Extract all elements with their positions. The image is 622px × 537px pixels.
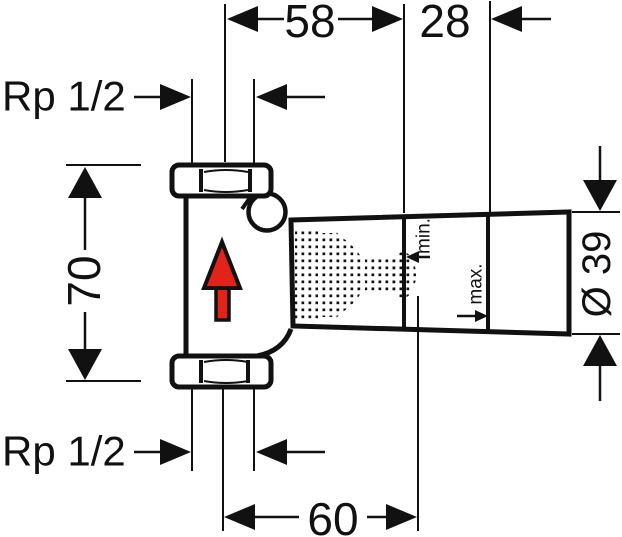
- dimension-70: 70: [58, 167, 110, 380]
- hex-nut-bottom: [172, 356, 271, 387]
- dim-70-label: 70: [58, 255, 110, 306]
- dim-28-label: 28: [419, 0, 470, 47]
- dimension-58: 58: [227, 0, 403, 47]
- outlet-boss: [249, 194, 286, 231]
- dimension-28: 28: [419, 0, 551, 47]
- valve-body: [186, 194, 291, 357]
- rp-half-top-label: Rp 1/2: [2, 73, 126, 120]
- dimension-60: 60: [224, 493, 417, 537]
- diameter-label: Ø 39: [575, 231, 619, 318]
- dim-60-label: 60: [307, 493, 358, 537]
- min-label: min.: [414, 218, 435, 254]
- hex-nut-top: [172, 165, 271, 196]
- dim-58-label: 58: [284, 0, 335, 47]
- technical-drawing-canvas: 58 28 Rp 1/2 Rp 1/2 70 60: [0, 0, 622, 537]
- dimension-diameter-39: Ø 39: [575, 146, 619, 401]
- thread-label-top: Rp 1/2: [2, 73, 325, 120]
- rp-half-bottom-label: Rp 1/2: [2, 428, 126, 475]
- thread-label-bottom: Rp 1/2: [2, 428, 325, 475]
- max-label: max.: [466, 263, 487, 304]
